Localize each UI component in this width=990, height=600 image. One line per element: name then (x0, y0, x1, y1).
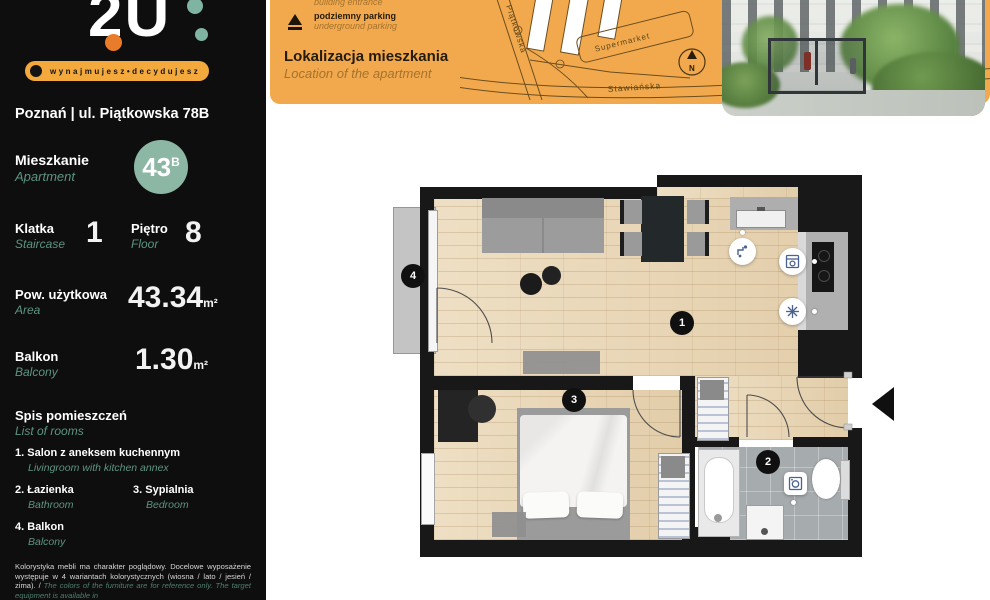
faucet-icon (729, 238, 756, 265)
balcony-label-pl: Balkon (15, 349, 58, 364)
balcony-unit: m² (193, 358, 208, 372)
street-stawianska-label: Stawiańska (607, 80, 661, 94)
legend-entrance: wejście do budynku building entrance (314, 0, 400, 7)
leader-dot-washing-machine (791, 500, 796, 505)
balcony-value: 1.30 (135, 343, 193, 376)
room-3-pl: Sypialnia (145, 484, 193, 496)
disclaimer: Kolorystyka mebli ma charakter poglądowy… (15, 562, 251, 600)
street-piatkowska-label: Piątkowska (504, 4, 528, 55)
area-label-en: Area (15, 303, 40, 317)
floor-label-pl: Piętro (131, 221, 168, 236)
room-3-en: Bedroom (146, 499, 194, 511)
legend-entrance-en: building entrance (314, 0, 400, 7)
room-item-3: 3. Sypialnia Bedroom (133, 484, 194, 511)
legend-entrance-icon (287, 0, 303, 7)
location-title-pl: Lokalizacja mieszkania (284, 48, 448, 65)
marker-balcony: 4 (401, 264, 425, 288)
balcony-label-en: Balcony (15, 365, 58, 379)
logo-dot-teal-icon (195, 28, 208, 41)
leader-dot-faucet (740, 230, 745, 235)
legend-parking-pl: podziemny parking (314, 11, 397, 21)
room-item-4: 4. Balkon Balcony (15, 521, 65, 548)
room-item-2: 2. Łazienka Bathroom (15, 484, 74, 511)
rooms-header-en: List of rooms (15, 424, 84, 438)
room-2-num: 2. (15, 484, 24, 496)
photo-person-1 (804, 52, 811, 70)
floor-value: 8 (185, 216, 202, 250)
apartment-label-pl: Mieszkanie (15, 152, 89, 168)
logo-dot-orange-icon (105, 34, 122, 51)
room-4-en: Balcony (28, 536, 65, 548)
legend-parking-icon (287, 13, 303, 37)
marker-1-label: 1 (679, 317, 685, 329)
location-title-en: Location of the apartment (284, 66, 431, 81)
room-1-num: 1. (15, 447, 24, 459)
marker-livingroom: 1 (670, 311, 694, 335)
compass-icon: N (679, 49, 705, 75)
oven-icon (779, 248, 806, 275)
room-2-en: Bathroom (28, 499, 74, 511)
leader-dot-fridge (812, 309, 817, 314)
legend-parking: podziemny parking underground parking (314, 11, 397, 31)
tagline-dot-icon (30, 65, 42, 77)
apartment-number: 43 (142, 152, 171, 183)
pergola-post (815, 41, 818, 85)
marker-2-label: 2 (765, 456, 771, 468)
map-building-3 (598, 0, 623, 39)
area-value-group: 43.34m² (128, 281, 218, 315)
area-value: 43.34 (128, 281, 203, 314)
marker-3-label: 3 (571, 394, 577, 406)
room-1-en: Livingroom with kitchen annex (28, 462, 180, 474)
room-item-1: 1. Salon z aneksem kuchennym Livingroom … (15, 447, 180, 474)
balcony-value-group: 1.30m² (135, 343, 208, 377)
apartment-number-suffix: B (171, 155, 180, 169)
room-4-pl: Balkon (27, 521, 64, 533)
room-4-num: 4. (15, 521, 24, 533)
room-3-num: 3. (133, 484, 142, 496)
building-photo (722, 0, 985, 116)
brand-tagline: wynajmujesz•decydujesz (50, 67, 200, 76)
apartment-number-badge: 43 B (134, 140, 188, 194)
floor-label-en: Floor (131, 237, 158, 251)
rooms-header-pl: Spis pomieszczeń (15, 408, 127, 423)
staircase-label-en: Staircase (15, 237, 65, 251)
marker-bedroom: 3 (562, 388, 586, 412)
sidebar: 2U wynajmujesz•decydujesz Poznań | ul. P… (0, 0, 266, 600)
fridge-snowflake-icon (779, 298, 806, 325)
room-1-pl: Salon z aneksem kuchennym (27, 447, 180, 459)
compass-letter: N (689, 64, 695, 73)
logo-wordmark: 2U (88, 0, 171, 51)
floor-plan: 1 2 3 4 (392, 165, 892, 565)
marker-bathroom: 2 (756, 450, 780, 474)
staircase-label-pl: Klatka (15, 221, 54, 236)
photo-person-2 (850, 58, 856, 74)
logo-dot-teal-top-icon (187, 0, 203, 14)
disclaimer-en: The colors of the furniture are for refe… (15, 581, 251, 600)
staircase-value: 1 (86, 216, 103, 250)
entrance-arrow-icon (872, 387, 894, 421)
door-arcs (392, 165, 892, 565)
washing-machine-icon (784, 472, 807, 495)
legend-parking-en: underground parking (314, 21, 397, 31)
area-unit: m² (203, 296, 218, 310)
marker-4-label: 4 (410, 270, 416, 282)
apartment-label-en: Apartment (15, 169, 75, 184)
area-label-pl: Pow. użytkowa (15, 287, 107, 302)
map-building-1 (527, 0, 554, 51)
room-2-pl: Łazienka (27, 484, 73, 496)
leader-dot-oven (812, 259, 817, 264)
map-supermarket: Supermarket (576, 10, 695, 63)
apartment-flyer: 2U wynajmujesz•decydujesz Poznań | ul. P… (0, 0, 990, 600)
address: Poznań | ul. Piątkowska 78B (15, 106, 209, 122)
map-building-2 (561, 0, 590, 55)
brand-tagline-pill: wynajmujesz•decydujesz (25, 61, 209, 81)
